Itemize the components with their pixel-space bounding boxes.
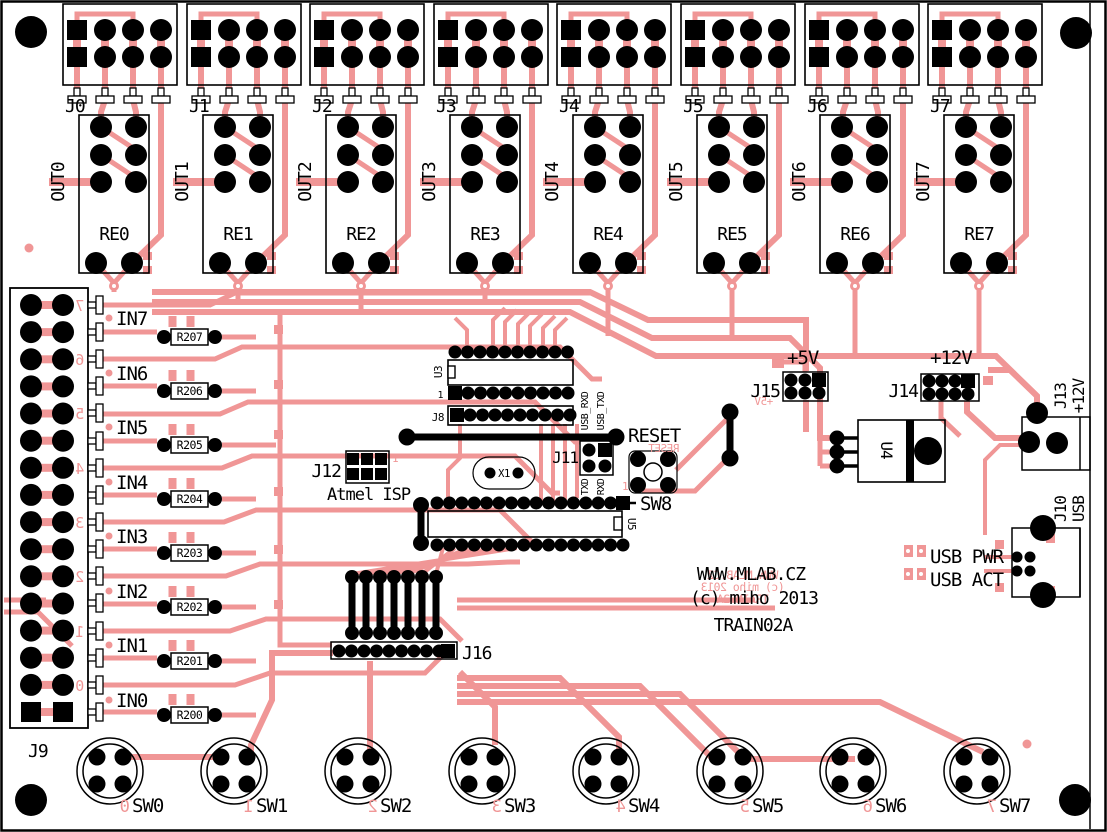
label-sw3: SW3	[504, 795, 536, 817]
label-re0: RE0	[99, 224, 129, 245]
label-sw1: SW1	[256, 795, 288, 817]
label-out6: OUT6	[789, 162, 810, 202]
label-j12: J12	[311, 461, 341, 482]
label-sw6: SW6	[875, 795, 907, 817]
relay-re4	[543, 115, 646, 291]
j9-pin1-mirror: 1	[75, 623, 84, 641]
relay-re6	[790, 115, 893, 291]
relay-re2	[296, 115, 399, 291]
plus5v-mirror: +5V	[754, 395, 773, 408]
board-site: WWW.MLAB.CZ	[697, 564, 806, 585]
sw1-pin-mirror: 1	[244, 797, 254, 817]
label-sw5: SW5	[752, 795, 783, 817]
j9-pin6-mirror: 6	[75, 351, 84, 369]
label-out7: OUT7	[913, 162, 934, 202]
label-in0: IN0	[116, 690, 148, 712]
board-title: TRAIN02A	[714, 615, 794, 636]
label-re1: RE1	[223, 224, 253, 245]
j9-pin5-mirror: 5	[76, 405, 85, 423]
sw5-pin-mirror: 5	[740, 797, 750, 817]
label-j13-voltage: +12V	[1069, 377, 1088, 413]
mcu-u5	[428, 496, 630, 552]
label-usb-txd: USB_TXD	[596, 391, 607, 430]
label-out2: OUT2	[295, 162, 316, 202]
power-header-j14	[921, 374, 979, 401]
label-re2: RE2	[346, 224, 376, 245]
label-j10: J10	[1051, 496, 1070, 522]
label-j4: J4	[559, 96, 579, 117]
label-sw8: SW8	[640, 493, 672, 515]
label-r206: R206	[177, 384, 203, 398]
label-out3: OUT3	[419, 162, 440, 202]
label-out0: OUT0	[48, 162, 69, 202]
label-j0: J0	[65, 96, 85, 117]
label-in5: IN5	[116, 417, 147, 439]
label-j8: J8	[432, 411, 444, 424]
label-u4: U4	[877, 441, 896, 459]
sw8-pin1-marker: 1	[622, 480, 628, 493]
label-in4: IN4	[116, 472, 148, 494]
sw4-pin-mirror: 4	[616, 797, 626, 817]
label-in2: IN2	[116, 581, 147, 603]
power-header-j15	[783, 372, 828, 401]
relay-re0	[49, 115, 152, 291]
sw3-pin-mirror: 3	[492, 797, 502, 817]
label-j10-type: USB	[1069, 496, 1088, 522]
serial-header-j11	[580, 441, 613, 475]
u3-pin1-marker: 1	[437, 390, 443, 401]
label-plus5v: +5V	[787, 347, 819, 369]
label-u3: U3	[432, 366, 445, 378]
usb-connector-j10	[1012, 515, 1081, 608]
label-usb-pwr: USB PWR	[930, 546, 1005, 568]
label-rxd: RXD	[596, 478, 607, 495]
label-in6: IN6	[116, 363, 148, 385]
label-r204: R204	[177, 492, 203, 506]
label-r203: R203	[177, 546, 203, 560]
label-r202: R202	[177, 600, 203, 614]
sw0-pin-mirror: 0	[120, 797, 130, 817]
reset-mirror: RESET	[648, 442, 679, 455]
label-j13: J13	[1051, 383, 1070, 409]
pcb-board: J0 J1 J2 J3 J4 J5 J6 J7 OUT0 OUT1 OUT2 O…	[0, 0, 1107, 832]
label-sw2: SW2	[380, 795, 411, 817]
board-copyright: (c) miho 2013	[690, 588, 818, 609]
sw2-pin-mirror: 2	[368, 797, 378, 817]
label-j1: J1	[189, 96, 209, 117]
relay-re3	[420, 115, 523, 291]
label-j2: J2	[312, 96, 332, 117]
label-j11: J11	[552, 448, 578, 467]
label-txd: TXD	[580, 478, 591, 495]
label-usb-rxd: USB_RXD	[580, 391, 591, 430]
label-u5: U5	[625, 518, 638, 530]
label-j7: J7	[930, 96, 950, 117]
label-in7: IN7	[116, 308, 148, 330]
j9-pin0-mirror: 0	[75, 677, 84, 695]
header-j16	[331, 642, 457, 659]
label-plus12v: +12V	[930, 347, 972, 369]
sw6-pin-mirror: 6	[863, 797, 873, 817]
label-out5: OUT5	[666, 162, 687, 202]
label-r205: R205	[177, 438, 203, 452]
label-j14: J14	[888, 381, 918, 402]
relay-re7	[914, 115, 1017, 291]
label-r200: R200	[177, 708, 203, 722]
label-re7: RE7	[964, 224, 994, 245]
output-connectors-j0-j7	[63, 4, 1042, 263]
pcb-layout-view: J0 J1 J2 J3 J4 J5 J6 J7 OUT0 OUT1 OUT2 O…	[0, 0, 1107, 832]
j9-pin4-mirror: 4	[75, 460, 84, 478]
label-j9: J9	[28, 741, 48, 762]
j9-pin3-mirror: 3	[76, 514, 85, 532]
label-re4: RE4	[593, 224, 623, 245]
label-r207: R207	[177, 330, 203, 344]
input-connector-j9	[10, 288, 103, 728]
label-out4: OUT4	[542, 162, 563, 202]
label-j5: J5	[683, 96, 703, 117]
label-re3: RE3	[470, 224, 500, 245]
j12-pin1-marker: 1	[392, 452, 398, 465]
sw7-pin-mirror: 7	[987, 797, 997, 817]
label-j6: J6	[807, 96, 827, 117]
label-sw4: SW4	[628, 795, 660, 817]
label-sw7: SW7	[999, 795, 1031, 817]
label-j3: J3	[436, 96, 456, 117]
label-atmel-isp: Atmel ISP	[327, 485, 411, 505]
switches-sw0-sw7	[77, 738, 1010, 804]
label-usb-act: USB ACT	[930, 569, 1004, 591]
label-r201: R201	[177, 654, 203, 668]
relay-re1	[173, 115, 276, 291]
label-in1: IN1	[116, 635, 148, 657]
relay-re5	[667, 115, 770, 291]
label-re6: RE6	[840, 224, 870, 245]
j9-pin2-mirror: 2	[76, 568, 85, 586]
isp-header-j12	[346, 451, 389, 483]
label-out1: OUT1	[172, 162, 193, 202]
label-x1: X1	[498, 468, 510, 480]
label-sw0: SW0	[132, 795, 164, 817]
label-j16: J16	[462, 643, 492, 664]
label-in3: IN3	[116, 526, 148, 548]
j9-pin7-mirror: 7	[76, 297, 85, 315]
label-re5: RE5	[717, 224, 747, 245]
ic-u3-and-j8	[448, 346, 577, 426]
